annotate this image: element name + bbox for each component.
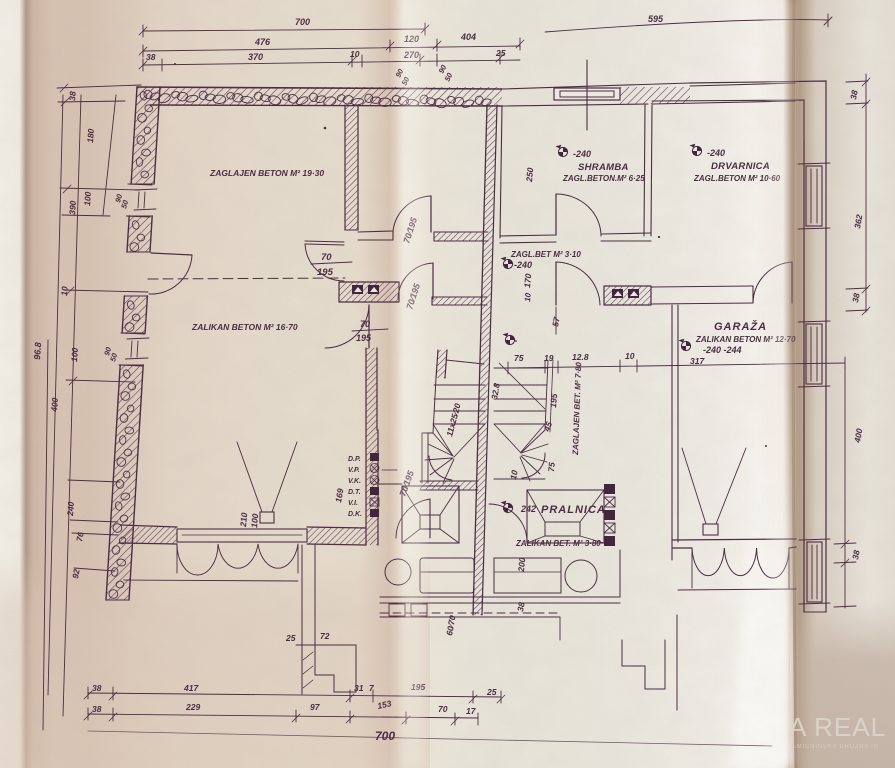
svg-text:195: 195: [356, 333, 372, 343]
svg-text:195: 195: [317, 267, 334, 278]
svg-text:SHRAMBA: SHRAMBA: [578, 162, 629, 173]
svg-text:38: 38: [515, 601, 527, 612]
svg-text:-240: -240: [514, 260, 532, 270]
svg-text:25: 25: [486, 687, 497, 697]
svg-text:75: 75: [546, 462, 557, 473]
svg-text:76: 76: [74, 531, 86, 542]
svg-text:595: 595: [648, 14, 664, 24]
svg-text:170: 170: [522, 273, 533, 288]
svg-text:-240 -244: -240 -244: [703, 345, 742, 355]
svg-text:75: 75: [514, 353, 524, 363]
svg-text:-240: -240: [707, 148, 725, 158]
svg-text:D.K.: D.K.: [348, 511, 362, 518]
svg-text:38: 38: [850, 292, 862, 303]
svg-text:200: 200: [516, 557, 527, 573]
svg-text:96.8: 96.8: [32, 342, 43, 360]
svg-text:ZAGL.BETON.M² 6·25: ZAGL.BETON.M² 6·25: [562, 174, 645, 183]
svg-text:700: 700: [375, 729, 395, 743]
svg-text:ZALIKAN BET. M² 3·80: ZALIKAN BET. M² 3·80: [515, 539, 601, 548]
svg-text:100: 100: [249, 513, 260, 528]
svg-text:10: 10: [625, 351, 635, 361]
svg-text:92: 92: [70, 568, 82, 579]
svg-text:17: 17: [466, 706, 477, 716]
svg-text:97: 97: [310, 702, 321, 712]
svg-text:19: 19: [544, 353, 554, 363]
svg-text:PRALNICA: PRALNICA: [541, 504, 606, 516]
svg-text:38: 38: [850, 549, 862, 560]
svg-text:31: 31: [354, 683, 364, 693]
svg-text:10: 10: [59, 286, 70, 296]
svg-text:700: 700: [295, 17, 310, 27]
svg-text:25: 25: [285, 633, 296, 643]
svg-text:404: 404: [460, 32, 476, 42]
svg-text:70: 70: [360, 319, 370, 329]
svg-text:ZALIKAN BETON M² 16·70: ZALIKAN BETON M² 16·70: [191, 322, 298, 332]
svg-text:38: 38: [146, 52, 156, 62]
svg-text:ZAGLAJEN BETON M² 19·30: ZAGLAJEN BETON M² 19·30: [209, 168, 324, 178]
svg-text:250: 250: [524, 167, 535, 183]
svg-text:D.T.: D.T.: [348, 489, 361, 496]
svg-text:A REAL: A REAL: [789, 712, 886, 742]
svg-text:195: 195: [548, 393, 559, 408]
svg-text:ZAGL.BETON M² 10·60: ZAGL.BETON M² 10·60: [693, 174, 781, 183]
svg-text:240: 240: [65, 501, 76, 517]
svg-text:210: 210: [238, 512, 249, 528]
svg-text:GARAŽA: GARAŽA: [714, 320, 767, 333]
svg-text:370: 370: [248, 52, 263, 62]
svg-text:V.K.: V.K.: [348, 478, 361, 485]
svg-text:400: 400: [49, 397, 60, 413]
svg-text:70: 70: [438, 704, 448, 714]
svg-text:38: 38: [92, 704, 102, 714]
svg-text:100: 100: [69, 347, 80, 362]
svg-text:229: 229: [185, 702, 200, 712]
svg-text:317: 317: [690, 356, 705, 366]
svg-text:417: 417: [183, 683, 199, 693]
svg-text:38: 38: [848, 89, 860, 100]
svg-text:ZAGL.BET M² 3·10: ZAGL.BET M² 3·10: [510, 250, 581, 259]
svg-text:10: 10: [523, 292, 533, 302]
svg-text:476: 476: [254, 37, 271, 47]
svg-text:100: 100: [82, 191, 93, 206]
svg-text:EMICNINSKA DRUZBA IN: EMICNINSKA DRUZBA IN: [792, 744, 879, 750]
svg-text:V.P.: V.P.: [348, 467, 360, 474]
svg-text:390: 390: [67, 200, 78, 215]
svg-text:242: 242: [520, 504, 536, 514]
svg-text:72: 72: [320, 631, 330, 641]
svg-text:25: 25: [495, 48, 506, 58]
svg-text:70: 70: [321, 252, 332, 263]
svg-text:D.P.: D.P.: [348, 456, 361, 463]
svg-text:DRVARNICA: DRVARNICA: [711, 161, 770, 172]
svg-text:-240: -240: [573, 149, 591, 159]
svg-text:180: 180: [85, 128, 96, 143]
svg-text:38: 38: [67, 91, 78, 101]
svg-text:12.8: 12.8: [572, 352, 589, 362]
svg-text:V.I.: V.I.: [348, 500, 358, 507]
svg-text:10: 10: [508, 469, 520, 480]
svg-text:10: 10: [350, 49, 360, 59]
svg-text:38: 38: [92, 683, 102, 693]
